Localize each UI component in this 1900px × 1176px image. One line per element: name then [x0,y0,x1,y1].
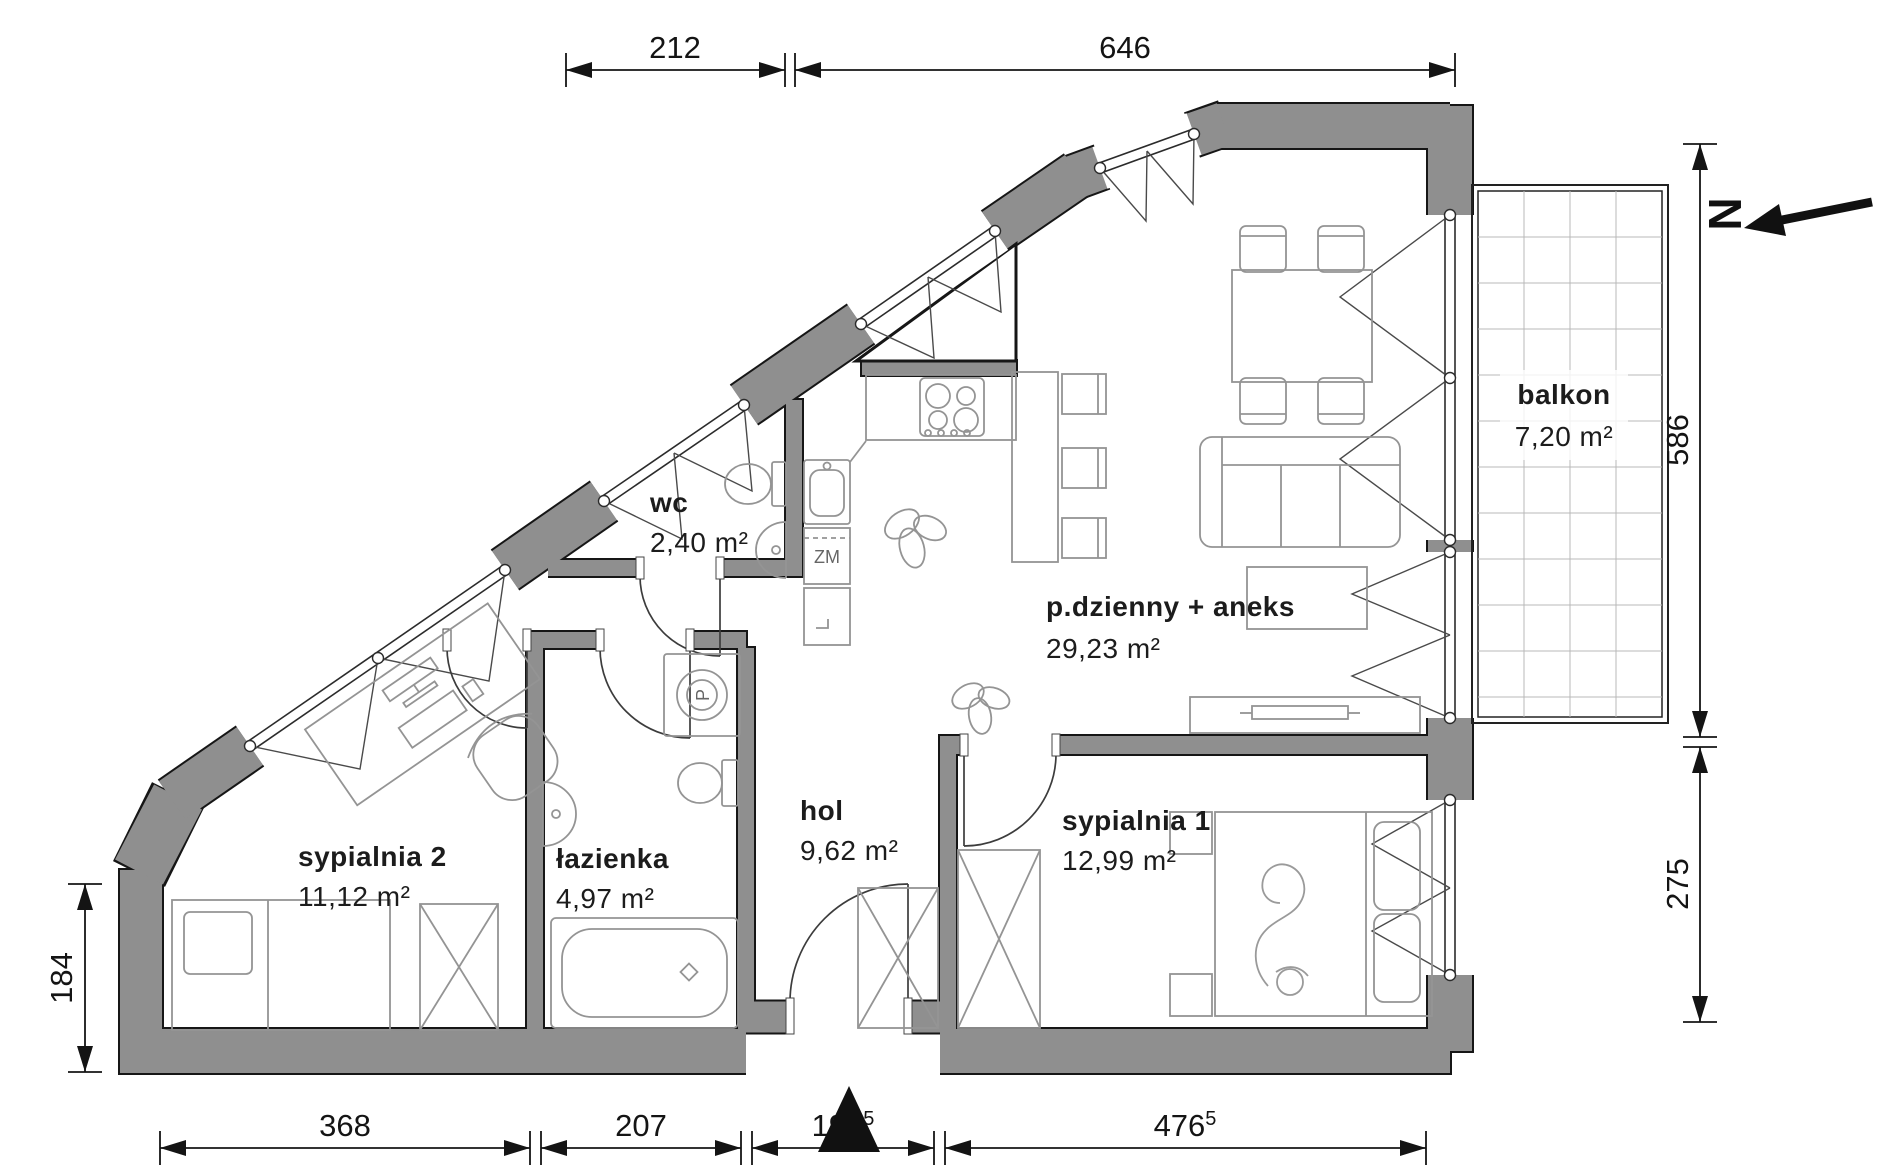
svg-text:wc: wc [649,487,688,518]
room-label-hall: hol 9,62 m² [800,795,898,866]
kitchen-cabinet [804,588,850,645]
svg-text:11,12 m²: 11,12 m² [298,881,410,912]
window-living-corner [1095,129,1200,222]
bar-counter [1012,372,1106,562]
svg-text:łazienka: łazienka [556,843,669,874]
svg-text:2,40 m²: 2,40 m² [650,527,748,558]
door-bedroom1 [964,754,1056,846]
north-letter: N [1699,197,1751,230]
bathtub [551,918,738,1028]
tv-sideboard [1190,697,1420,733]
svg-text:9,62 m²: 9,62 m² [800,835,898,866]
dim-bottom-2: 207 [615,1108,667,1143]
dishwasher-label: ZM [814,547,840,567]
hall-wardrobe [858,888,938,1028]
bedroom2-wardrobe [420,904,498,1030]
sofa [1200,437,1400,547]
svg-text:p.dzienny + aneks: p.dzienny + aneks [1046,591,1295,622]
dim-top-2: 646 [1099,30,1151,65]
north-arrow: N [1699,197,1872,236]
dim-right-1: 586 [1660,414,1695,466]
wc-toilet [725,462,786,506]
dining-table [1232,226,1372,424]
person-figure [1256,864,1308,995]
bedroom1-bed [1215,812,1432,1016]
plant-kitchen [880,503,951,570]
window-wc [599,400,753,540]
floor-plan-canvas: ZM P p.dzienny + aneks 29,23 m² balkon 7… [0,0,1900,1176]
bedroom2-bed [172,900,390,1030]
washing-machine-label: P [693,689,713,701]
svg-text:4,97 m²: 4,97 m² [556,883,654,914]
dim-bottom-1: 368 [319,1108,371,1143]
svg-text:sypialnia 2: sypialnia 2 [298,841,447,872]
svg-text:sypialnia 1: sypialnia 1 [1062,805,1211,836]
room-label-bedroom1: sypialnia 1 12,99 m² [1062,805,1211,876]
wall-fills [139,106,1450,1073]
stove [866,375,1016,440]
bathroom-toilet [678,760,738,806]
bathroom-sink [543,782,576,846]
svg-text:7,20 m²: 7,20 m² [1515,421,1613,452]
svg-text:hol: hol [800,795,844,826]
wall-outlines [139,104,1452,1075]
dim-top-1: 212 [649,30,701,65]
balcony [1472,185,1668,723]
room-label-living: p.dzienny + aneks 29,23 m² [1046,591,1295,664]
nightstand-bottom [1170,974,1212,1016]
svg-text:12,99 m²: 12,99 m² [1062,845,1177,876]
dim-left-1: 184 [44,952,79,1004]
room-label-bedroom2: sypialnia 2 11,12 m² [298,841,447,912]
room-label-bathroom: łazienka 4,97 m² [556,843,669,914]
svg-text:29,23 m²: 29,23 m² [1046,633,1161,664]
room-label-wc: wc 2,40 m² [649,487,748,558]
kitchen-sink [804,441,866,524]
window-bedroom2 [245,565,511,770]
dim-bottom-4: 4765 [1154,1108,1217,1143]
plant-living [948,678,1013,736]
bedroom1-wardrobe [958,850,1040,1028]
svg-text:balkon: balkon [1517,379,1610,410]
dim-right-2: 275 [1660,858,1695,910]
floor-plan-drawing: ZM P p.dzienny + aneks 29,23 m² balkon 7… [0,0,1900,1176]
